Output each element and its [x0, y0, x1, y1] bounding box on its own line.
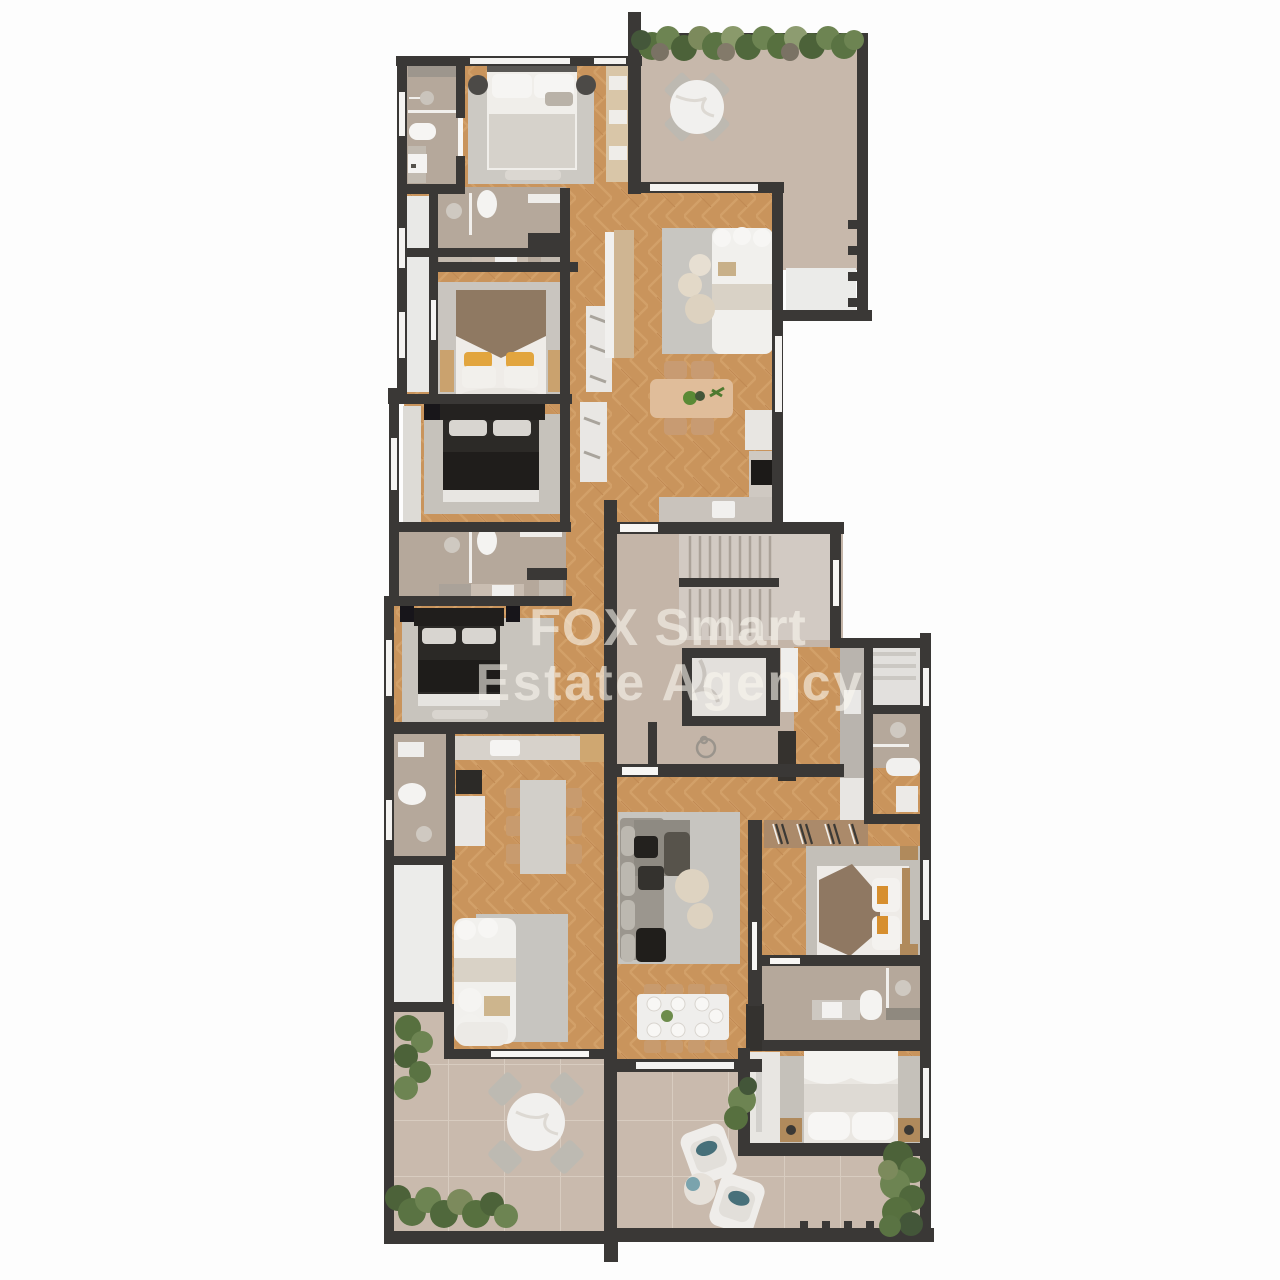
svg-text:Estate Agency: Estate Agency [476, 654, 865, 712]
svg-text:FOX Smart: FOX Smart [529, 599, 807, 657]
